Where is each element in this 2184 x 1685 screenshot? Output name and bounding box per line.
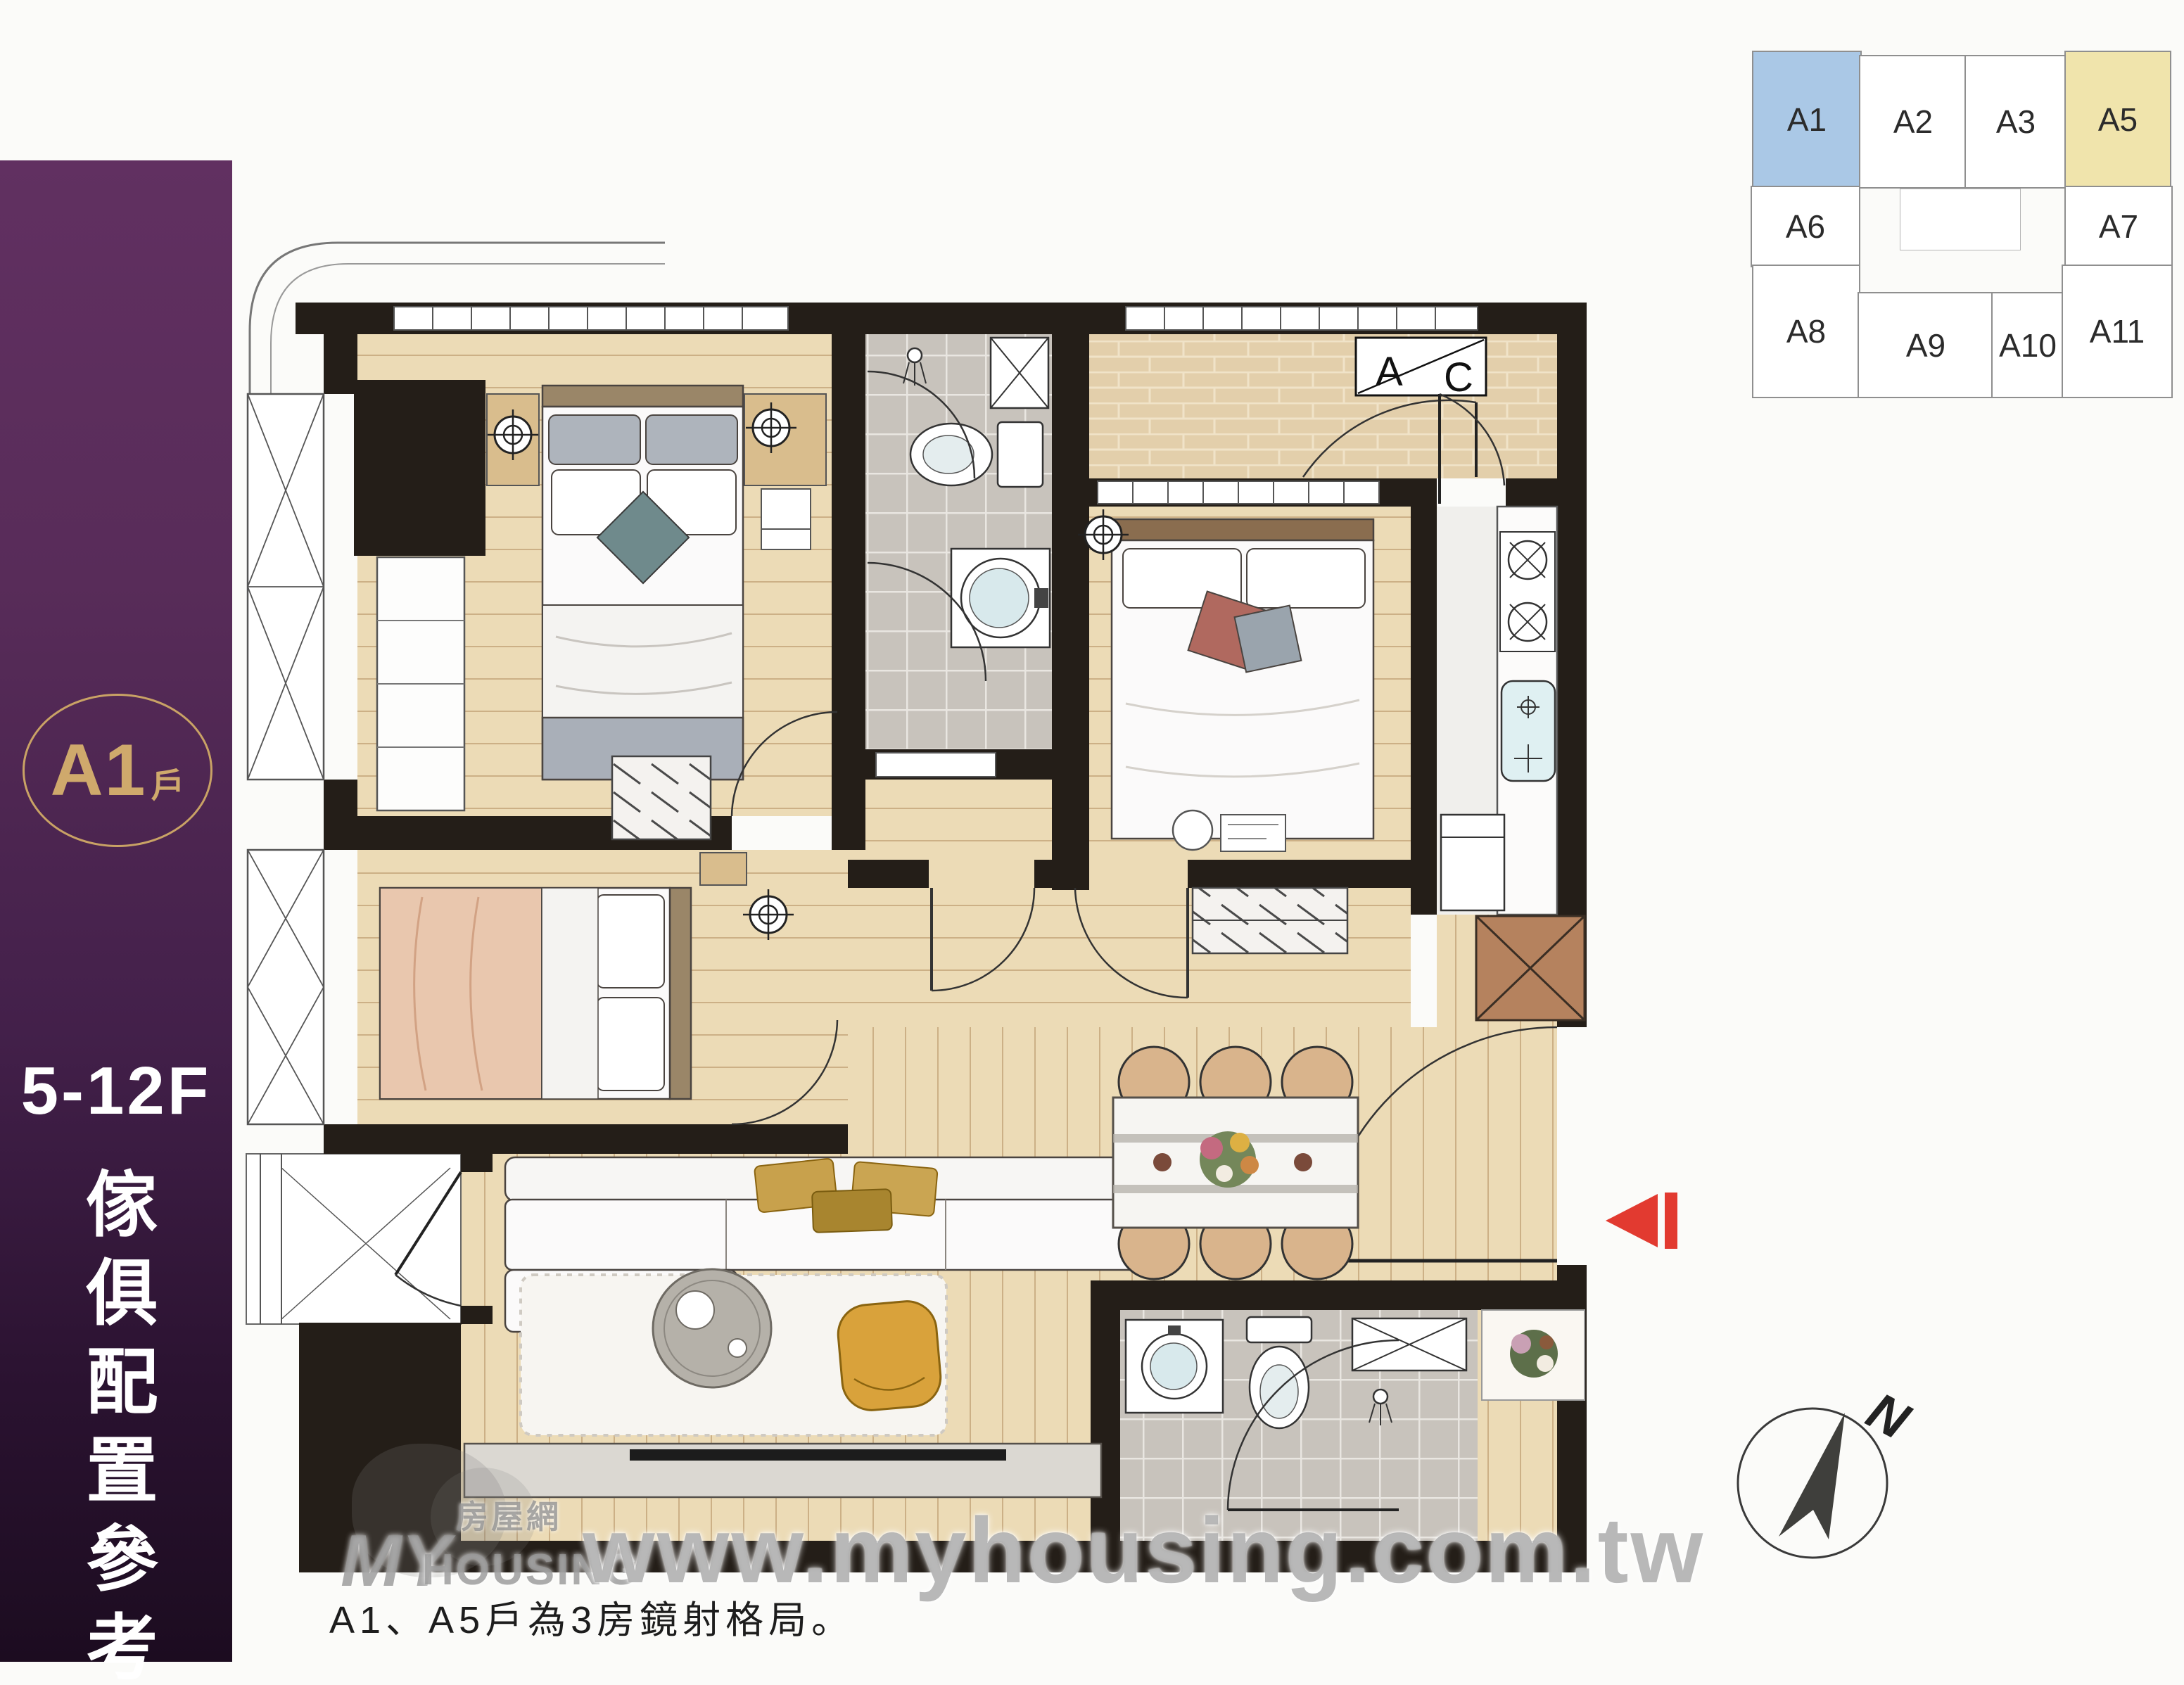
- tv: [630, 1449, 1006, 1461]
- fridge-icon: [1441, 815, 1504, 910]
- bed-1: [542, 386, 743, 780]
- floors-label: 5-12F: [0, 1053, 232, 1130]
- keyplan-unit-a1: A1: [1752, 51, 1862, 189]
- pantry-cabinet: [1476, 916, 1585, 1020]
- plant-decor: [1482, 1310, 1585, 1400]
- bed-2: [380, 888, 691, 1099]
- caption-text: A1、A5戶為3房鏡射格局。: [329, 1589, 854, 1644]
- keyplan-unit-a5: A5: [2064, 51, 2171, 189]
- keyplan-unit-a11: A11: [2062, 265, 2173, 398]
- coffee-table: [653, 1269, 771, 1387]
- unit-suffix: 戶: [151, 758, 184, 807]
- entry-arrow-icon: [1606, 1193, 1677, 1249]
- toilet-icon: [910, 422, 1043, 487]
- stove-icon: [1500, 532, 1555, 651]
- brochure-page: A C: [0, 0, 2184, 1685]
- keyplan-core: [1900, 189, 2021, 250]
- keyplan-unit-a3: A3: [1964, 55, 2067, 189]
- sliding-door: [876, 753, 996, 777]
- keyplan-unit-a8: A8: [1752, 265, 1860, 398]
- dining-area: [1113, 1047, 1358, 1279]
- vertical-title: 傢俱配置參考圖: [70, 1166, 162, 1685]
- keyplan-unit-a9: A9: [1858, 292, 1994, 398]
- sink-icon: [1126, 1320, 1223, 1413]
- keyplan: A1 A2 A3 A5 A6 A7 A8 A9 A10 A11: [1738, 28, 2184, 408]
- ac-label-right: C: [1444, 355, 1473, 400]
- unit-label: A1: [51, 729, 147, 813]
- dining-table: [1113, 1098, 1358, 1228]
- sink-icon: [951, 549, 1050, 647]
- toilet-icon: [1247, 1317, 1312, 1428]
- keyplan-unit-a6: A6: [1751, 186, 1860, 267]
- north-arrow-icon: [1779, 1413, 1845, 1539]
- title-banner: A1 戶 5-12F 傢俱配置參考圖: [0, 160, 232, 1662]
- keyplan-unit-a10: A10: [1991, 292, 2064, 398]
- kitchen-sink-icon: [1502, 681, 1555, 781]
- keyplan-unit-a7: A7: [2064, 186, 2173, 267]
- keyplan-unit-a2: A2: [1859, 55, 1967, 189]
- unit-badge: A1 戶: [23, 694, 212, 847]
- armchair: [836, 1299, 944, 1413]
- compass-icon: N: [1738, 1381, 1919, 1558]
- compass-north-label: N: [1858, 1381, 1919, 1451]
- bed-master: [1112, 519, 1373, 839]
- ac-label-left: A: [1376, 349, 1403, 395]
